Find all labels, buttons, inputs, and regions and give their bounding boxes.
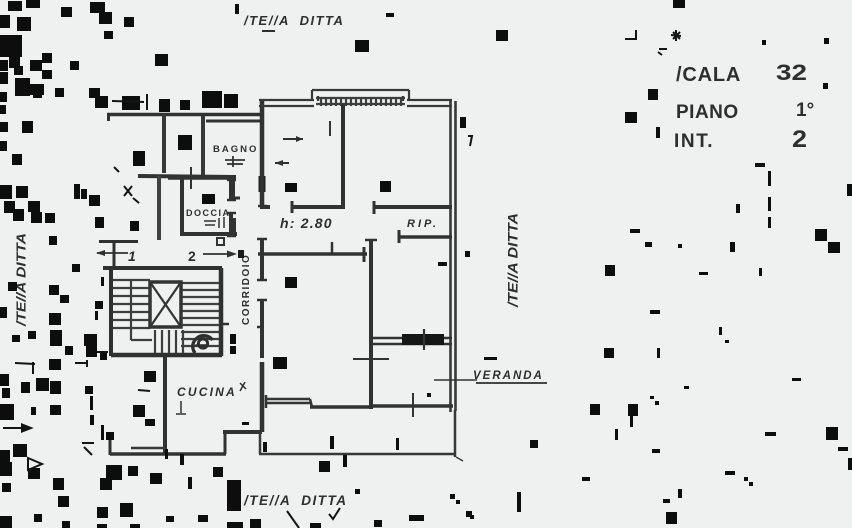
svg-text:CUCINA: CUCINA bbox=[177, 385, 237, 399]
svg-text:RIP.: RIP. bbox=[407, 218, 439, 230]
svg-text:/TE//A DITTA: /TE//A DITTA bbox=[505, 213, 521, 308]
svg-text:INT.: INT. bbox=[674, 131, 714, 152]
svg-text:/CALA: /CALA bbox=[676, 64, 741, 86]
svg-text:/TE//A DITTA: /TE//A DITTA bbox=[14, 233, 29, 327]
svg-text:2: 2 bbox=[188, 248, 196, 264]
svg-text:CORRIDOIO: CORRIDOIO bbox=[241, 254, 252, 325]
svg-text:h: 2.80: h: 2.80 bbox=[280, 215, 333, 231]
svg-text:1: 1 bbox=[128, 248, 136, 264]
svg-text:2: 2 bbox=[792, 126, 807, 153]
svg-text:VERANDA: VERANDA bbox=[473, 370, 544, 382]
svg-text:32: 32 bbox=[776, 60, 807, 85]
svg-text:/TE//A DITTA: /TE//A DITTA bbox=[243, 493, 348, 508]
svg-text:BAGNO: BAGNO bbox=[213, 144, 258, 155]
svg-text:PIANO: PIANO bbox=[676, 102, 739, 123]
svg-text:/TE//A DITTA: /TE//A DITTA bbox=[243, 13, 344, 28]
svg-text:1°: 1° bbox=[796, 100, 814, 121]
svg-text:DOCCIA: DOCCIA bbox=[186, 208, 231, 218]
